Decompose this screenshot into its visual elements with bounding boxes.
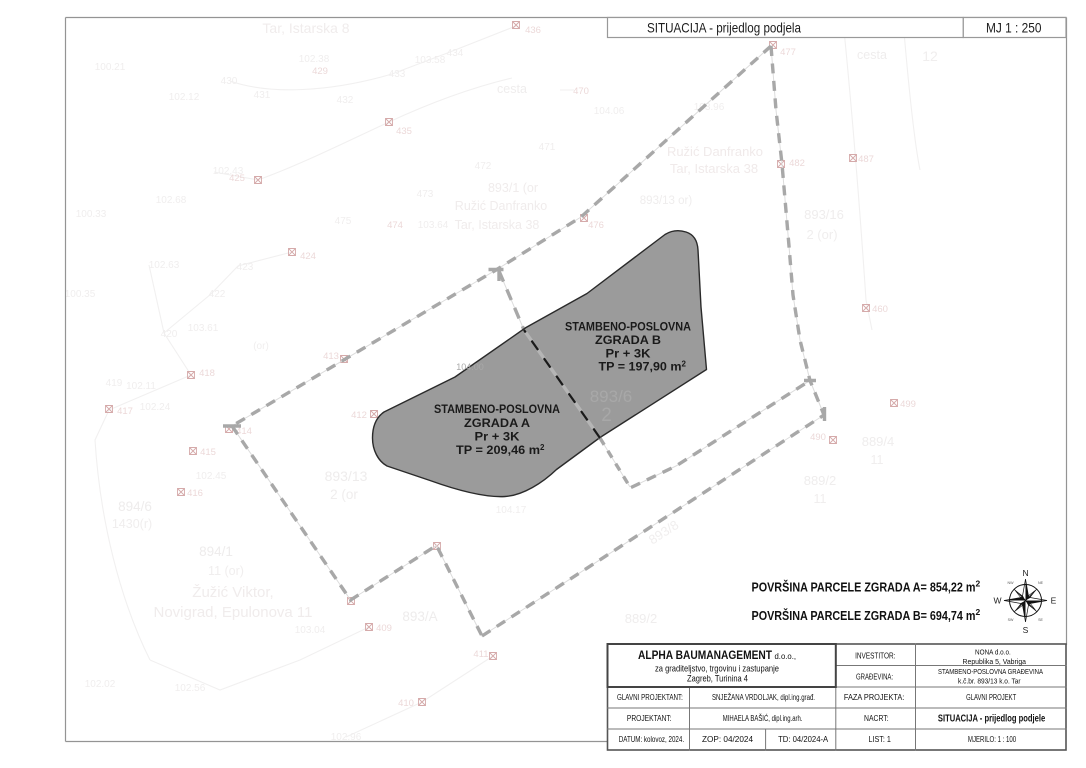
svg-text:SITUACIJA - prijedlog podjele: SITUACIJA - prijedlog podjele: [938, 714, 1046, 725]
svg-text:894/1: 894/1: [199, 544, 233, 559]
svg-text:STAMBENO-POSLOVNA: STAMBENO-POSLOVNA: [434, 402, 560, 416]
svg-text:889/4: 889/4: [862, 434, 895, 449]
svg-text:2 (or): 2 (or): [806, 227, 837, 242]
svg-text:POVRŠINA PARCELE ZGRADA A= 854: POVRŠINA PARCELE ZGRADA A= 854,22 m2: [752, 579, 981, 595]
svg-text:418: 418: [199, 368, 215, 379]
svg-text:889/2: 889/2: [625, 611, 658, 626]
svg-text:894/6: 894/6: [118, 499, 152, 514]
svg-text:PROJEKTANT:: PROJEKTANT:: [627, 714, 672, 723]
svg-text:422: 422: [209, 289, 226, 300]
svg-text:MIHAELA BAŠIĆ, dipl.ing.arh.: MIHAELA BAŠIĆ, dipl.ing.arh.: [723, 714, 803, 723]
svg-text:889/2: 889/2: [804, 473, 837, 488]
svg-text:Zagreb, Turinina 4: Zagreb, Turinina 4: [687, 674, 748, 685]
svg-text:k.č.br. 893/13 k.o. Tar: k.č.br. 893/13 k.o. Tar: [958, 677, 1021, 686]
svg-text:893/13: 893/13: [325, 468, 368, 484]
svg-text:893/1 (or: 893/1 (or: [488, 181, 538, 195]
svg-text:MJ 1 : 250: MJ 1 : 250: [986, 20, 1042, 36]
svg-text:893/6: 893/6: [590, 387, 633, 406]
svg-text:SNJEŽANA VRDOLJAK, dipl.ing.gr: SNJEŽANA VRDOLJAK, dipl.ing.građ.: [712, 693, 815, 702]
svg-text:TP = 209,46 m2: TP = 209,46 m2: [456, 443, 545, 457]
svg-text:Republika 5, Vabriga: Republika 5, Vabriga: [963, 657, 1027, 666]
svg-text:420: 420: [161, 329, 178, 340]
svg-text:W: W: [993, 596, 1001, 606]
svg-text:474: 474: [387, 220, 403, 231]
svg-text:11 (or): 11 (or): [208, 564, 244, 578]
svg-text:102.68: 102.68: [156, 195, 187, 206]
svg-text:102.12: 102.12: [169, 92, 200, 103]
svg-text:NE: NE: [1038, 581, 1044, 585]
svg-text:429: 429: [312, 66, 328, 77]
svg-text:11: 11: [871, 453, 884, 467]
svg-text:412: 412: [351, 410, 367, 421]
svg-text:415: 415: [200, 447, 216, 458]
svg-text:490: 490: [810, 432, 826, 443]
svg-text:DATUM: kolovoz, 2024.: DATUM: kolovoz, 2024.: [619, 735, 684, 744]
svg-text:Tar, Istarska 38: Tar, Istarska 38: [670, 161, 758, 176]
svg-text:NONA d.o.o.: NONA d.o.o.: [975, 648, 1011, 657]
svg-text:893/16: 893/16: [804, 207, 844, 222]
svg-text:102.24: 102.24: [140, 402, 171, 413]
svg-text:487: 487: [858, 154, 874, 165]
svg-text:430: 430: [221, 76, 238, 87]
svg-text:103.04: 103.04: [295, 625, 326, 636]
svg-text:2 (or: 2 (or: [330, 487, 358, 502]
svg-text:413: 413: [323, 351, 339, 362]
svg-text:102.56: 102.56: [175, 683, 206, 694]
svg-text:424: 424: [300, 251, 316, 262]
svg-text:TP = 197,90 m2: TP = 197,90 m2: [599, 360, 687, 374]
svg-text:102.02: 102.02: [85, 679, 116, 690]
svg-text:102.63: 102.63: [149, 260, 180, 271]
svg-text:435: 435: [396, 126, 412, 137]
svg-text:434: 434: [447, 48, 464, 59]
svg-text:436: 436: [525, 25, 541, 36]
svg-text:103.64: 103.64: [418, 220, 449, 231]
svg-text:103.61: 103.61: [188, 323, 219, 334]
svg-text:12: 12: [922, 48, 938, 64]
svg-text:104.06: 104.06: [594, 106, 625, 117]
svg-text:Pr + 3K: Pr + 3K: [475, 430, 520, 444]
svg-text:POVRŠINA PARCELE ZGRADA B= 694: POVRŠINA PARCELE ZGRADA B= 694,74 m2: [752, 607, 981, 623]
svg-text:MJERILO: 1 : 100: MJERILO: 1 : 100: [968, 735, 1017, 744]
svg-text:409: 409: [376, 623, 392, 634]
svg-text:431: 431: [254, 90, 271, 101]
svg-text:475: 475: [335, 216, 352, 227]
svg-text:STAMBENO-POSLOVNA: STAMBENO-POSLOVNA: [565, 320, 691, 334]
svg-text:100.35: 100.35: [65, 289, 96, 300]
svg-text:104.17: 104.17: [496, 505, 527, 516]
svg-text:TD: 04/2024-A: TD: 04/2024-A: [778, 735, 829, 744]
svg-text:102.45: 102.45: [196, 471, 227, 482]
svg-text:Ružić Danfranko: Ružić Danfranko: [455, 199, 547, 213]
svg-text:STAMBENO-POSLOVNA GRAĐEVINA: STAMBENO-POSLOVNA GRAĐEVINA: [938, 667, 1044, 676]
svg-text:Tar, Istarska 8: Tar, Istarska 8: [262, 20, 349, 36]
svg-text:E: E: [1051, 596, 1057, 606]
svg-text:104.00: 104.00: [456, 362, 484, 372]
svg-text:FAZA PROJEKTA:: FAZA PROJEKTA:: [844, 693, 904, 702]
svg-text:S: S: [1023, 625, 1029, 635]
svg-text:2: 2: [601, 405, 612, 426]
svg-text:411: 411: [473, 649, 488, 660]
svg-text:Žužić Viktor,: Žužić Viktor,: [192, 584, 273, 601]
svg-text:470: 470: [573, 86, 589, 97]
svg-text:423: 423: [237, 262, 254, 273]
svg-text:ALPHA BAUMANAGEMENT: ALPHA BAUMANAGEMENT: [638, 649, 772, 662]
svg-text:Pr + 3K: Pr + 3K: [606, 347, 651, 361]
svg-text:SW: SW: [1008, 618, 1014, 622]
svg-text:SITUACIJA - prijedlog podjela: SITUACIJA - prijedlog podjela: [647, 20, 801, 36]
svg-text:NACRT:: NACRT:: [864, 714, 889, 723]
svg-text:Novigrad, Epulonova 11: Novigrad, Epulonova 11: [154, 604, 313, 621]
svg-text:Tar, Istarska 38: Tar, Istarska 38: [455, 218, 540, 232]
svg-text:482: 482: [789, 158, 805, 169]
svg-text:419: 419: [106, 378, 123, 389]
svg-text:(or): (or): [253, 341, 269, 352]
svg-text:cesta: cesta: [497, 82, 527, 96]
svg-text:103.58: 103.58: [415, 55, 446, 66]
svg-text:INVESTITOR:: INVESTITOR:: [855, 652, 895, 661]
svg-text:11: 11: [814, 492, 827, 506]
svg-text:102.38: 102.38: [299, 54, 330, 65]
svg-text:425: 425: [229, 173, 245, 184]
svg-text:ZGRADA A: ZGRADA A: [464, 416, 530, 430]
svg-text:432: 432: [337, 95, 354, 106]
svg-text:GLAVNI PROJEKT: GLAVNI PROJEKT: [966, 693, 1016, 702]
svg-text:ZGRADA B: ZGRADA B: [595, 333, 661, 347]
svg-text:417: 417: [117, 406, 133, 417]
svg-text:d.o.o.,: d.o.o.,: [775, 652, 797, 661]
svg-text:SE: SE: [1038, 618, 1043, 622]
svg-text:460: 460: [872, 304, 888, 315]
svg-text:cesta: cesta: [857, 48, 887, 62]
svg-text:476: 476: [588, 220, 604, 231]
svg-text:471: 471: [539, 142, 556, 153]
svg-text:N: N: [1022, 568, 1028, 578]
svg-text:1430(r): 1430(r): [112, 517, 152, 531]
svg-text:473: 473: [417, 189, 434, 200]
svg-text:893/13 or): 893/13 or): [640, 195, 693, 207]
svg-text:GRAĐEVINA:: GRAĐEVINA:: [856, 673, 893, 682]
svg-text:NW: NW: [1008, 581, 1015, 585]
svg-text:416: 416: [187, 488, 203, 499]
svg-text:433: 433: [389, 69, 406, 80]
svg-text:LIST: 1: LIST: 1: [869, 735, 892, 744]
svg-text:GLAVNI PROJEKTANT:: GLAVNI PROJEKTANT:: [617, 693, 683, 702]
svg-text:ZOP: 04/2024: ZOP: 04/2024: [702, 735, 754, 744]
svg-text:100.33: 100.33: [76, 209, 107, 220]
svg-text:499: 499: [900, 399, 916, 410]
svg-text:Ružić Danfranko: Ružić Danfranko: [667, 144, 763, 159]
svg-text:100.21: 100.21: [95, 62, 126, 73]
svg-text:477: 477: [780, 47, 796, 58]
svg-text:102.11: 102.11: [126, 381, 156, 392]
svg-text:893/A: 893/A: [402, 609, 437, 624]
svg-text:472: 472: [475, 161, 492, 172]
svg-text:410: 410: [398, 698, 414, 709]
